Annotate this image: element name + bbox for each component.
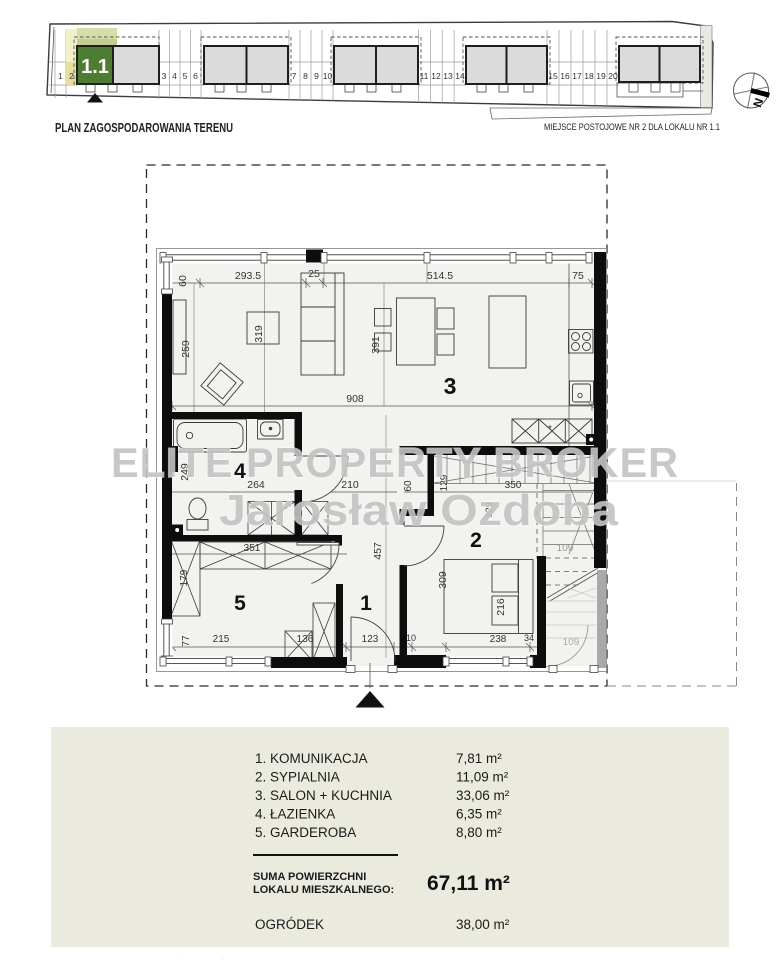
svg-text:109: 109 <box>557 543 574 554</box>
svg-text:238: 238 <box>490 634 507 645</box>
svg-text:17: 17 <box>572 71 582 81</box>
svg-text:20: 20 <box>608 71 618 81</box>
svg-text:34: 34 <box>524 633 534 643</box>
svg-text:179: 179 <box>179 569 190 586</box>
svg-text:ELITE PROPERTY BROKER: ELITE PROPERTY BROKER <box>111 439 679 486</box>
svg-text:4. ŁAZIENKA: 4. ŁAZIENKA <box>255 807 335 822</box>
svg-text:11,09 m²: 11,09 m² <box>456 770 509 785</box>
svg-text:10: 10 <box>406 633 416 643</box>
svg-text:11: 11 <box>420 71 429 81</box>
svg-text:3: 3 <box>444 373 457 399</box>
svg-text:136: 136 <box>297 634 314 645</box>
svg-text:5: 5 <box>183 71 188 81</box>
svg-text:1: 1 <box>360 592 372 615</box>
svg-text:14: 14 <box>455 71 465 81</box>
svg-text:9: 9 <box>314 71 319 81</box>
svg-text:67,11 m²: 67,11 m² <box>427 872 510 895</box>
svg-text:4: 4 <box>172 71 177 81</box>
svg-text:*: * <box>548 424 552 435</box>
svg-text:5: 5 <box>234 592 246 615</box>
svg-text:60: 60 <box>177 275 189 287</box>
svg-text:351: 351 <box>244 543 261 554</box>
svg-text:6,35 m²: 6,35 m² <box>456 807 502 822</box>
svg-text:2. SYPIALNIA: 2. SYPIALNIA <box>255 770 340 785</box>
svg-text:19: 19 <box>596 71 606 81</box>
svg-text:1: 1 <box>58 71 63 81</box>
svg-text:10: 10 <box>323 71 333 81</box>
svg-text:215: 215 <box>213 634 230 645</box>
svg-text:1. KOMUNIKACJA: 1. KOMUNIKACJA <box>255 751 368 766</box>
svg-text:123: 123 <box>362 634 379 645</box>
svg-text:3. SALON + KUCHNIA: 3. SALON + KUCHNIA <box>255 788 392 803</box>
svg-text:PLAN ZAGOSPODAROWANIA TERENU: PLAN ZAGOSPODAROWANIA TERENU <box>55 121 233 135</box>
svg-text:514.5: 514.5 <box>427 270 453 282</box>
svg-text:77: 77 <box>181 635 192 647</box>
svg-text:2: 2 <box>69 71 74 81</box>
svg-text:319: 319 <box>253 325 265 343</box>
svg-text:15: 15 <box>548 71 558 81</box>
svg-text:908: 908 <box>346 393 364 405</box>
svg-text:Jarosław Ozdoba: Jarosław Ozdoba <box>219 486 619 535</box>
svg-text:75: 75 <box>572 270 584 282</box>
svg-text:LOKALU MIESZKALNEGO:: LOKALU MIESZKALNEGO: <box>253 884 394 896</box>
svg-text:7,81 m²: 7,81 m² <box>456 751 502 766</box>
svg-text:16: 16 <box>560 71 570 81</box>
svg-text:12: 12 <box>431 71 441 81</box>
svg-text:6: 6 <box>193 71 198 81</box>
svg-text:109: 109 <box>563 637 580 648</box>
svg-text:5. GARDEROBA: 5. GARDEROBA <box>255 825 356 840</box>
svg-text:33,06 m²: 33,06 m² <box>456 788 510 803</box>
svg-text:SUMA POWIERZCHNI: SUMA POWIERZCHNI <box>253 871 366 883</box>
svg-text:216: 216 <box>495 598 507 616</box>
svg-text:7: 7 <box>292 71 297 81</box>
svg-text:309: 309 <box>437 571 449 589</box>
svg-text:457: 457 <box>372 542 384 560</box>
svg-text:3: 3 <box>162 71 167 81</box>
svg-text:25: 25 <box>308 268 320 280</box>
svg-text:8,80 m²: 8,80 m² <box>456 825 502 840</box>
svg-text:MIEJSCE POSTOJOWE NR 2 DLA LOK: MIEJSCE POSTOJOWE NR 2 DLA LOKALU NR 1.1 <box>544 122 720 132</box>
svg-text:OGRÓDEK: OGRÓDEK <box>255 917 324 932</box>
svg-text:13: 13 <box>443 71 453 81</box>
svg-text:293.5: 293.5 <box>235 270 261 282</box>
svg-text:8: 8 <box>303 71 308 81</box>
svg-text:18: 18 <box>584 71 594 81</box>
svg-text:38,00 m²: 38,00 m² <box>456 917 510 932</box>
svg-text:1.1: 1.1 <box>81 56 109 78</box>
